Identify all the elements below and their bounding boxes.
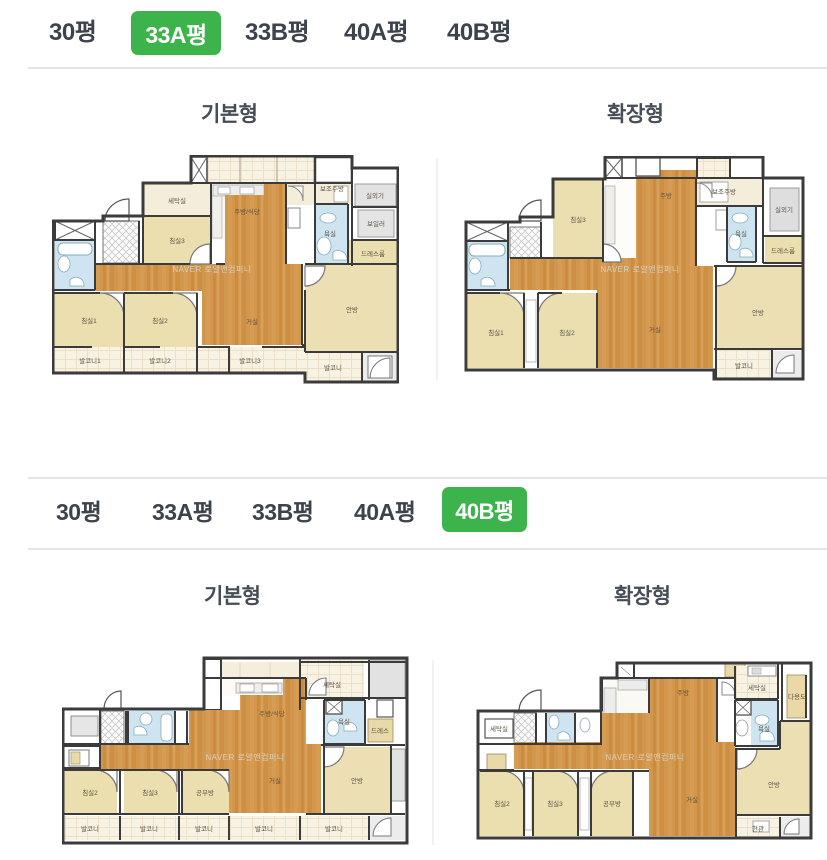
svg-text:세탁실: 세탁실	[490, 724, 508, 733]
svg-text:침실1: 침실1	[488, 328, 504, 337]
svg-text:침실3: 침실3	[169, 236, 185, 245]
svg-text:주방/식당: 주방/식당	[234, 207, 260, 216]
svg-text:NAVER 로얄앤컴퍼니: NAVER 로얄앤컴퍼니	[600, 264, 679, 274]
svg-text:안방: 안방	[752, 308, 764, 317]
svg-text:발코니: 발코니	[81, 824, 99, 833]
svg-text:침실3: 침실3	[142, 788, 158, 797]
svg-text:거실: 거실	[686, 795, 698, 804]
svg-text:발코니: 발코니	[324, 363, 342, 372]
svg-text:발코니: 발코니	[735, 361, 753, 370]
svg-text:보일러: 보일러	[367, 219, 385, 228]
svg-text:침실3: 침실3	[547, 799, 563, 808]
svg-text:침실2: 침실2	[559, 328, 575, 337]
svg-text:침실2: 침실2	[82, 788, 98, 797]
svg-text:발코니2: 발코니2	[149, 356, 171, 365]
svg-text:발코니: 발코니	[255, 824, 273, 833]
svg-text:욕실: 욕실	[735, 229, 747, 238]
svg-text:욕실: 욕실	[758, 724, 770, 733]
svg-text:주방/식당: 주방/식당	[259, 709, 285, 718]
svg-text:드레스: 드레스	[371, 726, 389, 735]
svg-text:안방: 안방	[351, 776, 363, 785]
svg-text:실외기: 실외기	[366, 191, 384, 200]
svg-text:NAVER 로얄앤컴퍼니: NAVER 로얄앤컴퍼니	[605, 752, 684, 762]
svg-text:드레스룸: 드레스룸	[361, 249, 385, 258]
svg-text:거실: 거실	[246, 317, 258, 326]
svg-text:드레스룸: 드레스룸	[771, 246, 795, 255]
svg-text:보조주방: 보조주방	[320, 184, 344, 193]
svg-text:주방: 주방	[660, 191, 672, 200]
svg-text:세탁실: 세탁실	[168, 196, 186, 205]
svg-text:침실3: 침실3	[570, 215, 586, 224]
svg-text:세탁실: 세탁실	[323, 680, 341, 689]
svg-text:보조주방: 보조주방	[712, 187, 736, 196]
svg-text:공부방: 공부방	[196, 788, 214, 797]
svg-text:발코니: 발코니	[195, 824, 213, 833]
svg-text:침실1: 침실1	[81, 316, 97, 325]
svg-text:침실2: 침실2	[152, 316, 168, 325]
svg-text:욕실: 욕실	[338, 717, 350, 726]
svg-text:발코니: 발코니	[325, 824, 343, 833]
svg-text:발코니3: 발코니3	[239, 356, 261, 365]
svg-text:거실: 거실	[269, 776, 281, 785]
svg-text:거실: 거실	[649, 325, 661, 334]
svg-text:침실2: 침실2	[494, 799, 510, 808]
svg-text:NAVER 로얄앤컴퍼니: NAVER 로얄앤컴퍼니	[205, 752, 284, 762]
svg-text:현관: 현관	[752, 824, 764, 833]
svg-text:발코니1: 발코니1	[79, 356, 101, 365]
svg-text:주방: 주방	[677, 688, 689, 697]
svg-text:다용도: 다용도	[788, 692, 806, 701]
svg-text:욕실: 욕실	[324, 229, 336, 238]
svg-text:세탁실: 세탁실	[748, 683, 766, 692]
svg-text:안방: 안방	[346, 305, 358, 314]
svg-text:발코니: 발코니	[140, 824, 158, 833]
svg-text:안방: 안방	[768, 780, 780, 789]
svg-text:실외기: 실외기	[775, 205, 793, 214]
svg-text:공부방: 공부방	[603, 799, 621, 808]
svg-text:NAVER 로얄앤컴퍼니: NAVER 로얄앤컴퍼니	[172, 264, 251, 274]
